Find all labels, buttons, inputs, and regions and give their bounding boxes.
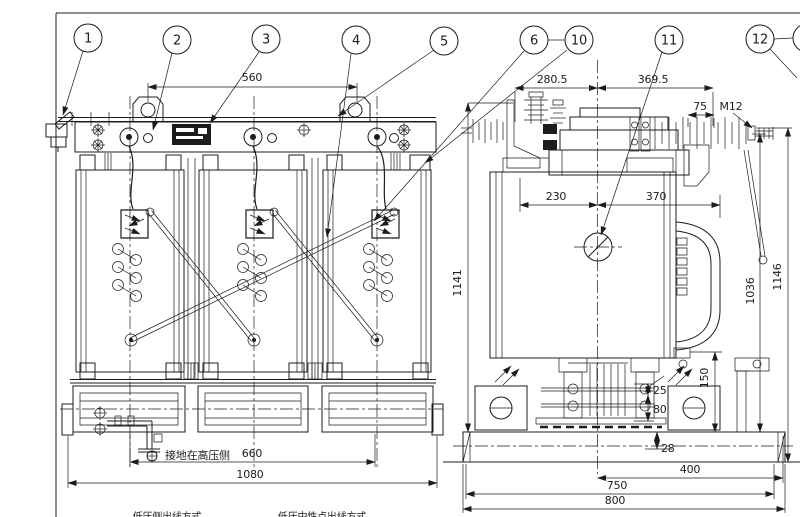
dim-25: 25	[653, 384, 667, 397]
dim-1080: 1080	[236, 468, 263, 481]
dim-660: 660	[242, 447, 263, 460]
ground-bracket	[107, 416, 162, 461]
balloon-2: 2	[163, 26, 191, 54]
balloon-12: 12	[746, 25, 774, 53]
svg-text:3: 3	[262, 33, 270, 48]
svg-text:1: 1	[84, 32, 92, 47]
balloon-10: 10	[565, 26, 593, 54]
dim-150: 150	[698, 368, 711, 389]
core-end-hatch	[105, 153, 400, 170]
dim-80: 80	[653, 403, 667, 416]
caption-lv-neutral-outlet: 低压中性点出线方式	[278, 510, 366, 517]
right-pad	[735, 358, 769, 432]
dim-280-5: 280.5	[537, 73, 568, 86]
busbars	[125, 208, 398, 346]
balloon-clipped	[793, 24, 800, 52]
svg-text:6: 6	[530, 34, 538, 49]
dim-230: 230	[546, 190, 567, 203]
svg-text:11: 11	[661, 34, 677, 49]
dim-400: 400	[680, 463, 701, 476]
tap-bolts	[113, 244, 393, 302]
dim-75: 75	[693, 100, 707, 113]
sheet-frame	[56, 13, 800, 517]
hv-terminals	[120, 128, 399, 146]
bottom-clamp	[70, 363, 436, 383]
dim-800: 800	[605, 494, 626, 507]
balloon-4: 4	[342, 26, 370, 54]
balloon-6: 6	[520, 26, 548, 54]
drawing-sheet: 560 660 1080 接地在高压侧 低压侧出线方式 低压中性点出线方式 28…	[0, 0, 800, 517]
dim-1146: 1146	[771, 263, 784, 290]
handle	[674, 222, 720, 368]
balloon-3: 3	[252, 25, 280, 53]
lv-bushings	[461, 92, 566, 168]
side-view	[443, 60, 800, 474]
core-clamp	[549, 108, 689, 175]
base-channels	[60, 386, 443, 436]
dim-28: 28	[661, 442, 675, 455]
dim-1141: 1141	[451, 269, 464, 296]
svg-text:2: 2	[173, 34, 181, 49]
svg-text:5: 5	[440, 35, 448, 50]
svg-text:4: 4	[352, 34, 360, 49]
lifting-lug-right	[340, 97, 370, 122]
note-grounding: 接地在高压侧	[165, 448, 230, 462]
base	[443, 432, 800, 462]
svg-text:12: 12	[752, 33, 768, 48]
core-limbs	[188, 158, 318, 378]
balloon-5: 5	[430, 27, 458, 55]
nameplate	[172, 124, 211, 145]
balloon-1: 1	[74, 24, 102, 52]
engineering-drawing: 560 660 1080 接地在高压侧 低压侧出线方式 低压中性点出线方式 28…	[0, 0, 800, 517]
label-m12: M12	[720, 100, 743, 113]
lift-arrows	[495, 366, 692, 385]
tank-body	[490, 158, 676, 358]
rollers	[536, 358, 666, 427]
front-view	[46, 96, 443, 468]
dim-1036: 1036	[744, 277, 757, 304]
balloon-11: 11	[655, 26, 683, 54]
dim-370: 370	[646, 190, 667, 203]
caption-lv-outlet: 低压侧出线方式	[133, 510, 202, 517]
dim-750: 750	[607, 479, 628, 492]
svg-text:10: 10	[571, 34, 587, 49]
